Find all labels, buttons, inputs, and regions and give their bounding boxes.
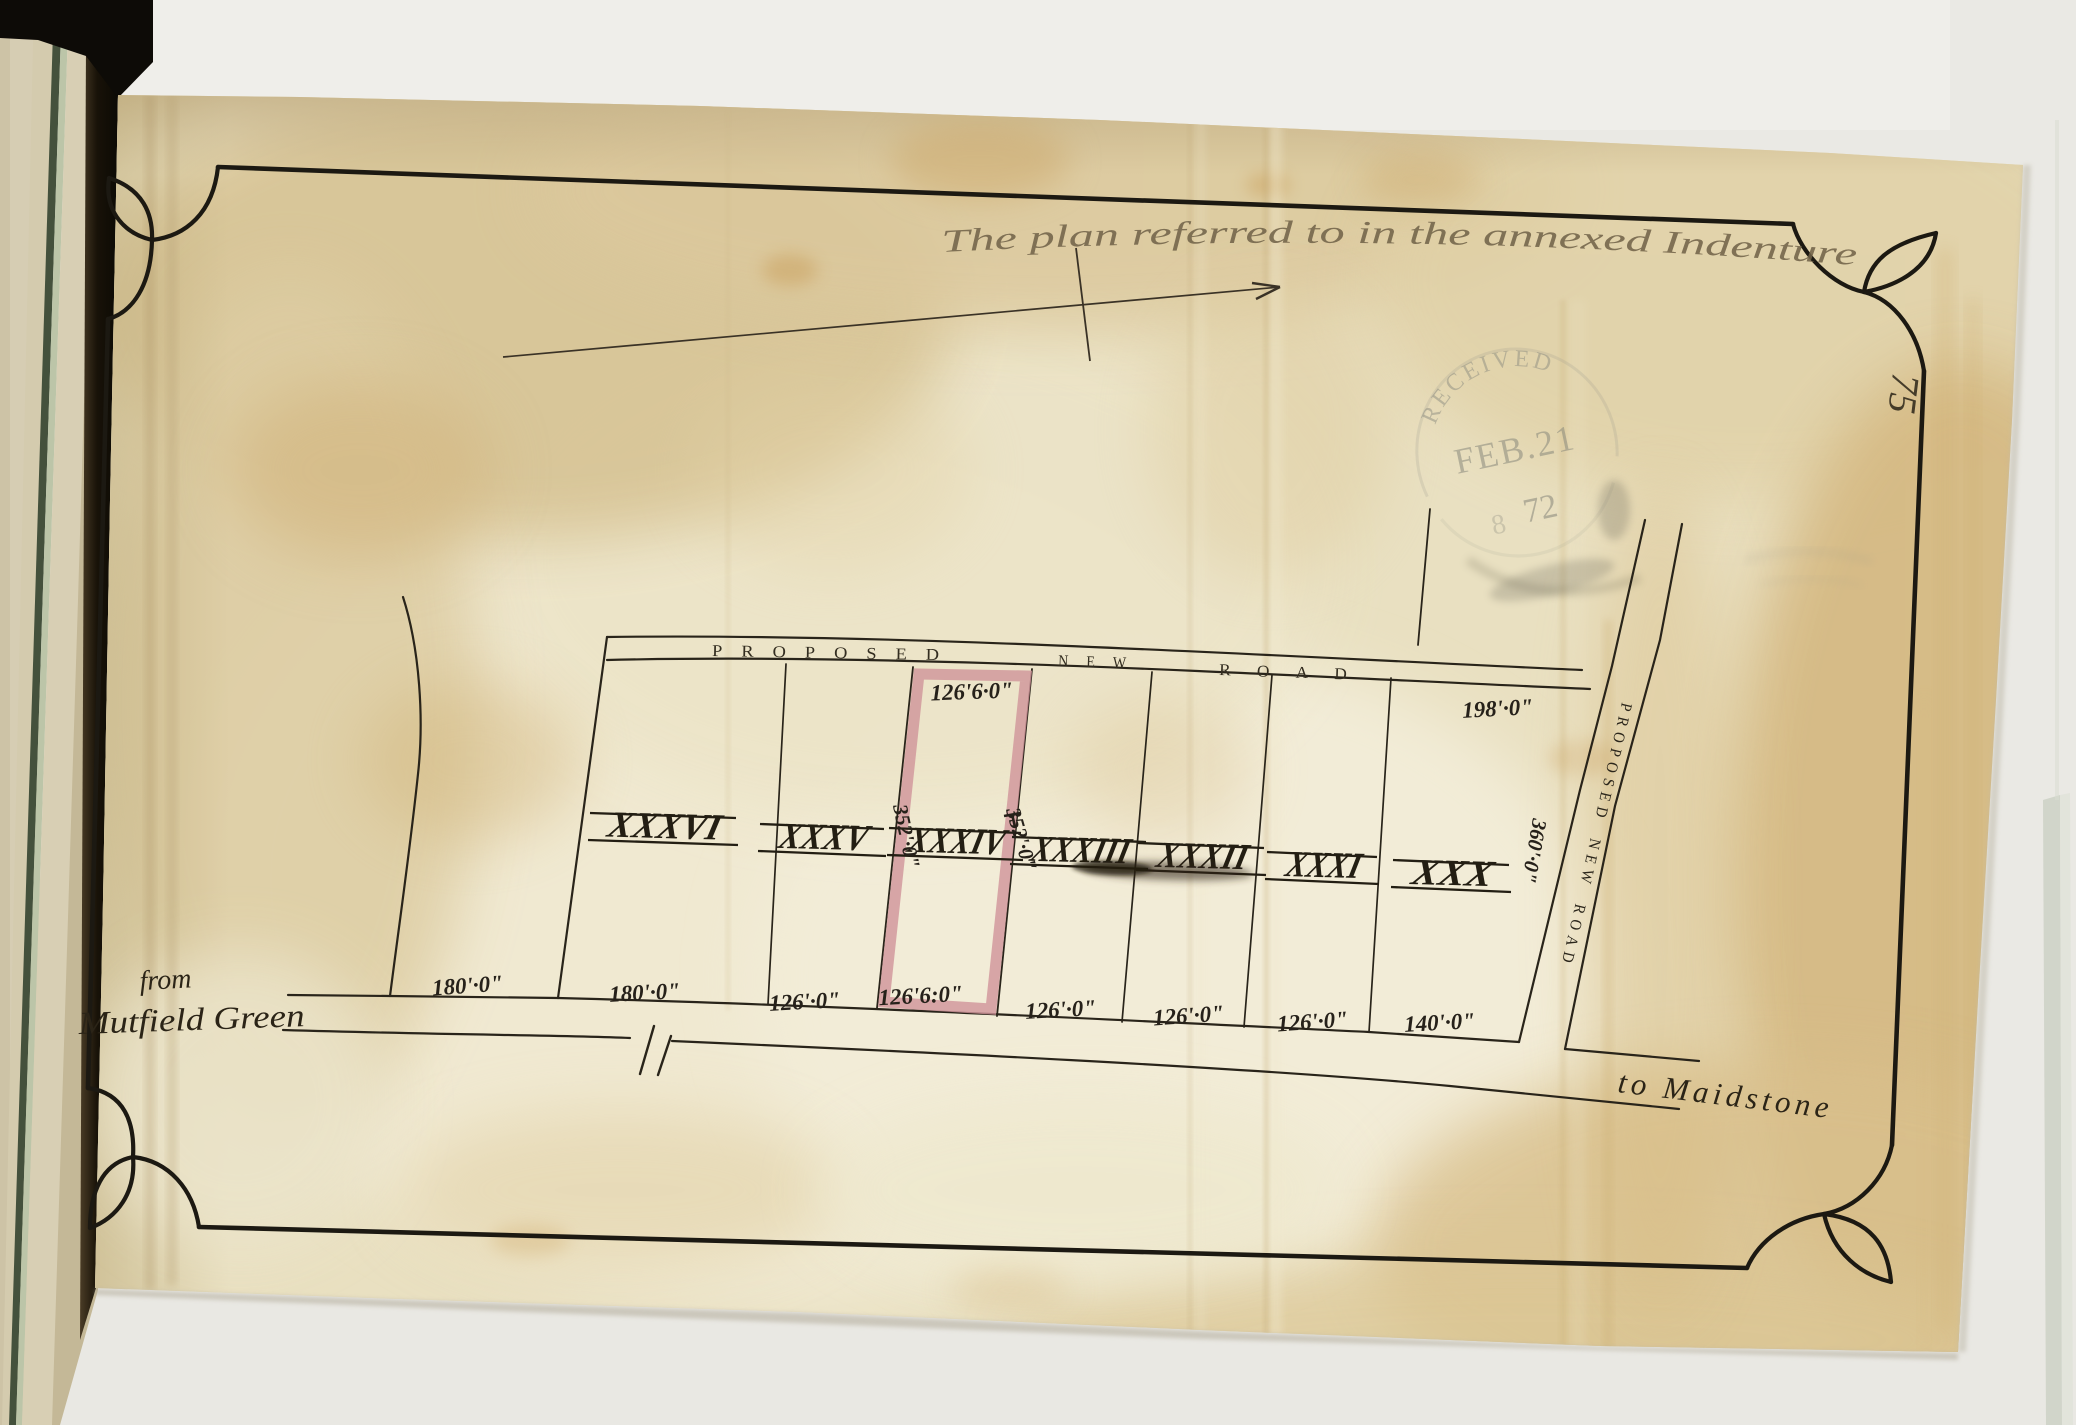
svg-text:180'·0": 180'·0" bbox=[431, 971, 503, 1001]
svg-text:NEW: NEW bbox=[1058, 651, 1145, 673]
svg-text:180'·0": 180'·0" bbox=[609, 978, 681, 1007]
svg-text:from: from bbox=[139, 963, 192, 997]
svg-text:126'6:0": 126'6:0" bbox=[878, 981, 964, 1010]
svg-text:140'·0": 140'·0" bbox=[1404, 1008, 1476, 1037]
svg-text:75: 75 bbox=[1879, 371, 1929, 416]
svg-text:126'·0": 126'·0" bbox=[1025, 995, 1097, 1024]
svg-text:126'·0": 126'·0" bbox=[1152, 1001, 1224, 1031]
svg-text:198'·0": 198'·0" bbox=[1462, 694, 1534, 723]
svg-text:126'·0": 126'·0" bbox=[769, 987, 841, 1016]
svg-text:126'6·0": 126'6·0" bbox=[930, 678, 1013, 706]
svg-text:126'·0": 126'·0" bbox=[1276, 1007, 1348, 1037]
